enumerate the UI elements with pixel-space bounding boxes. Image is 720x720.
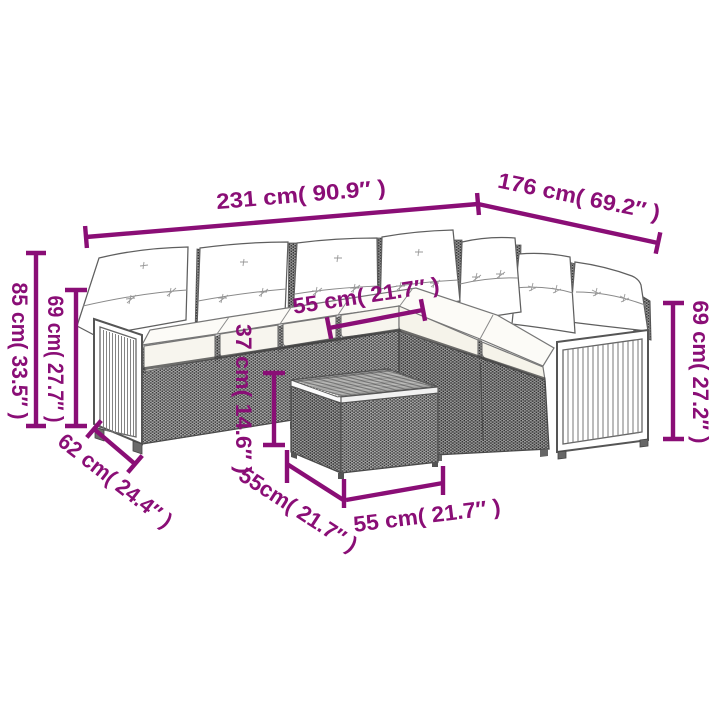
svg-text:69 cm( 27.7″ ): 69 cm( 27.7″ )	[43, 296, 68, 423]
svg-text:69 cm( 27.2″ ): 69 cm( 27.2″ )	[688, 301, 713, 444]
svg-text:85 cm( 33.5″ ): 85 cm( 33.5″ )	[7, 283, 32, 420]
svg-text:37 cm( 14.6″ ): 37 cm( 14.6″ )	[231, 324, 256, 474]
